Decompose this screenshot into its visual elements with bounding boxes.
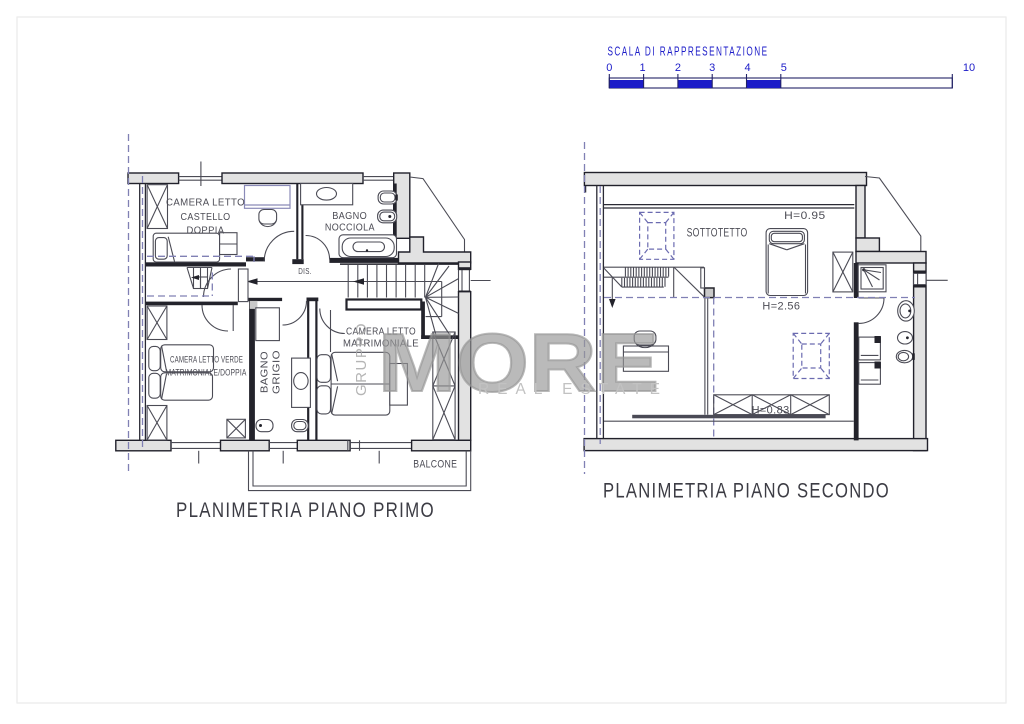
svg-text:CASTELLO: CASTELLO [181,212,231,223]
svg-text:DOPPIA: DOPPIA [187,226,225,237]
svg-text:REAL ESTATE: REAL ESTATE [478,381,660,398]
svg-text:BAGNO: BAGNO [332,211,367,222]
svg-text:MATRIMONIALE/DOPPIA: MATRIMONIALE/DOPPIA [166,368,247,379]
svg-text:3: 3 [709,62,715,74]
svg-text:1: 1 [640,62,646,74]
svg-text:BALCONE: BALCONE [413,459,457,471]
svg-text:4: 4 [744,62,750,74]
svg-text:H=0.83: H=0.83 [752,404,790,416]
svg-text:BAGNO: BAGNO [260,351,271,393]
svg-text:H=0.95: H=0.95 [784,210,826,222]
svg-text:GRIGIO: GRIGIO [272,350,283,394]
svg-text:CAMERA LETTO: CAMERA LETTO [166,198,245,209]
svg-text:10: 10 [963,62,975,74]
svg-text:H=2.56: H=2.56 [762,300,800,312]
svg-text:SOTTOTETTO: SOTTOTETTO [687,228,748,240]
svg-text:PLANIMETRIA PIANO SECONDO: PLANIMETRIA PIANO SECONDO [603,480,890,503]
svg-text:5: 5 [781,62,787,74]
svg-text:PLANIMETRIA PIANO PRIMO: PLANIMETRIA PIANO PRIMO [176,499,435,522]
svg-text:0: 0 [606,62,612,74]
svg-text:GRUPPO: GRUPPO [353,322,370,396]
svg-text:NOCCIOLA: NOCCIOLA [325,223,375,234]
svg-text:CAMERA LETTO VERDE: CAMERA LETTO VERDE [170,355,243,366]
svg-text:SCALA DI RAPPRESENTAZIONE: SCALA DI RAPPRESENTAZIONE [608,45,769,59]
svg-text:DIS.: DIS. [298,267,312,276]
svg-text:2: 2 [675,62,681,74]
